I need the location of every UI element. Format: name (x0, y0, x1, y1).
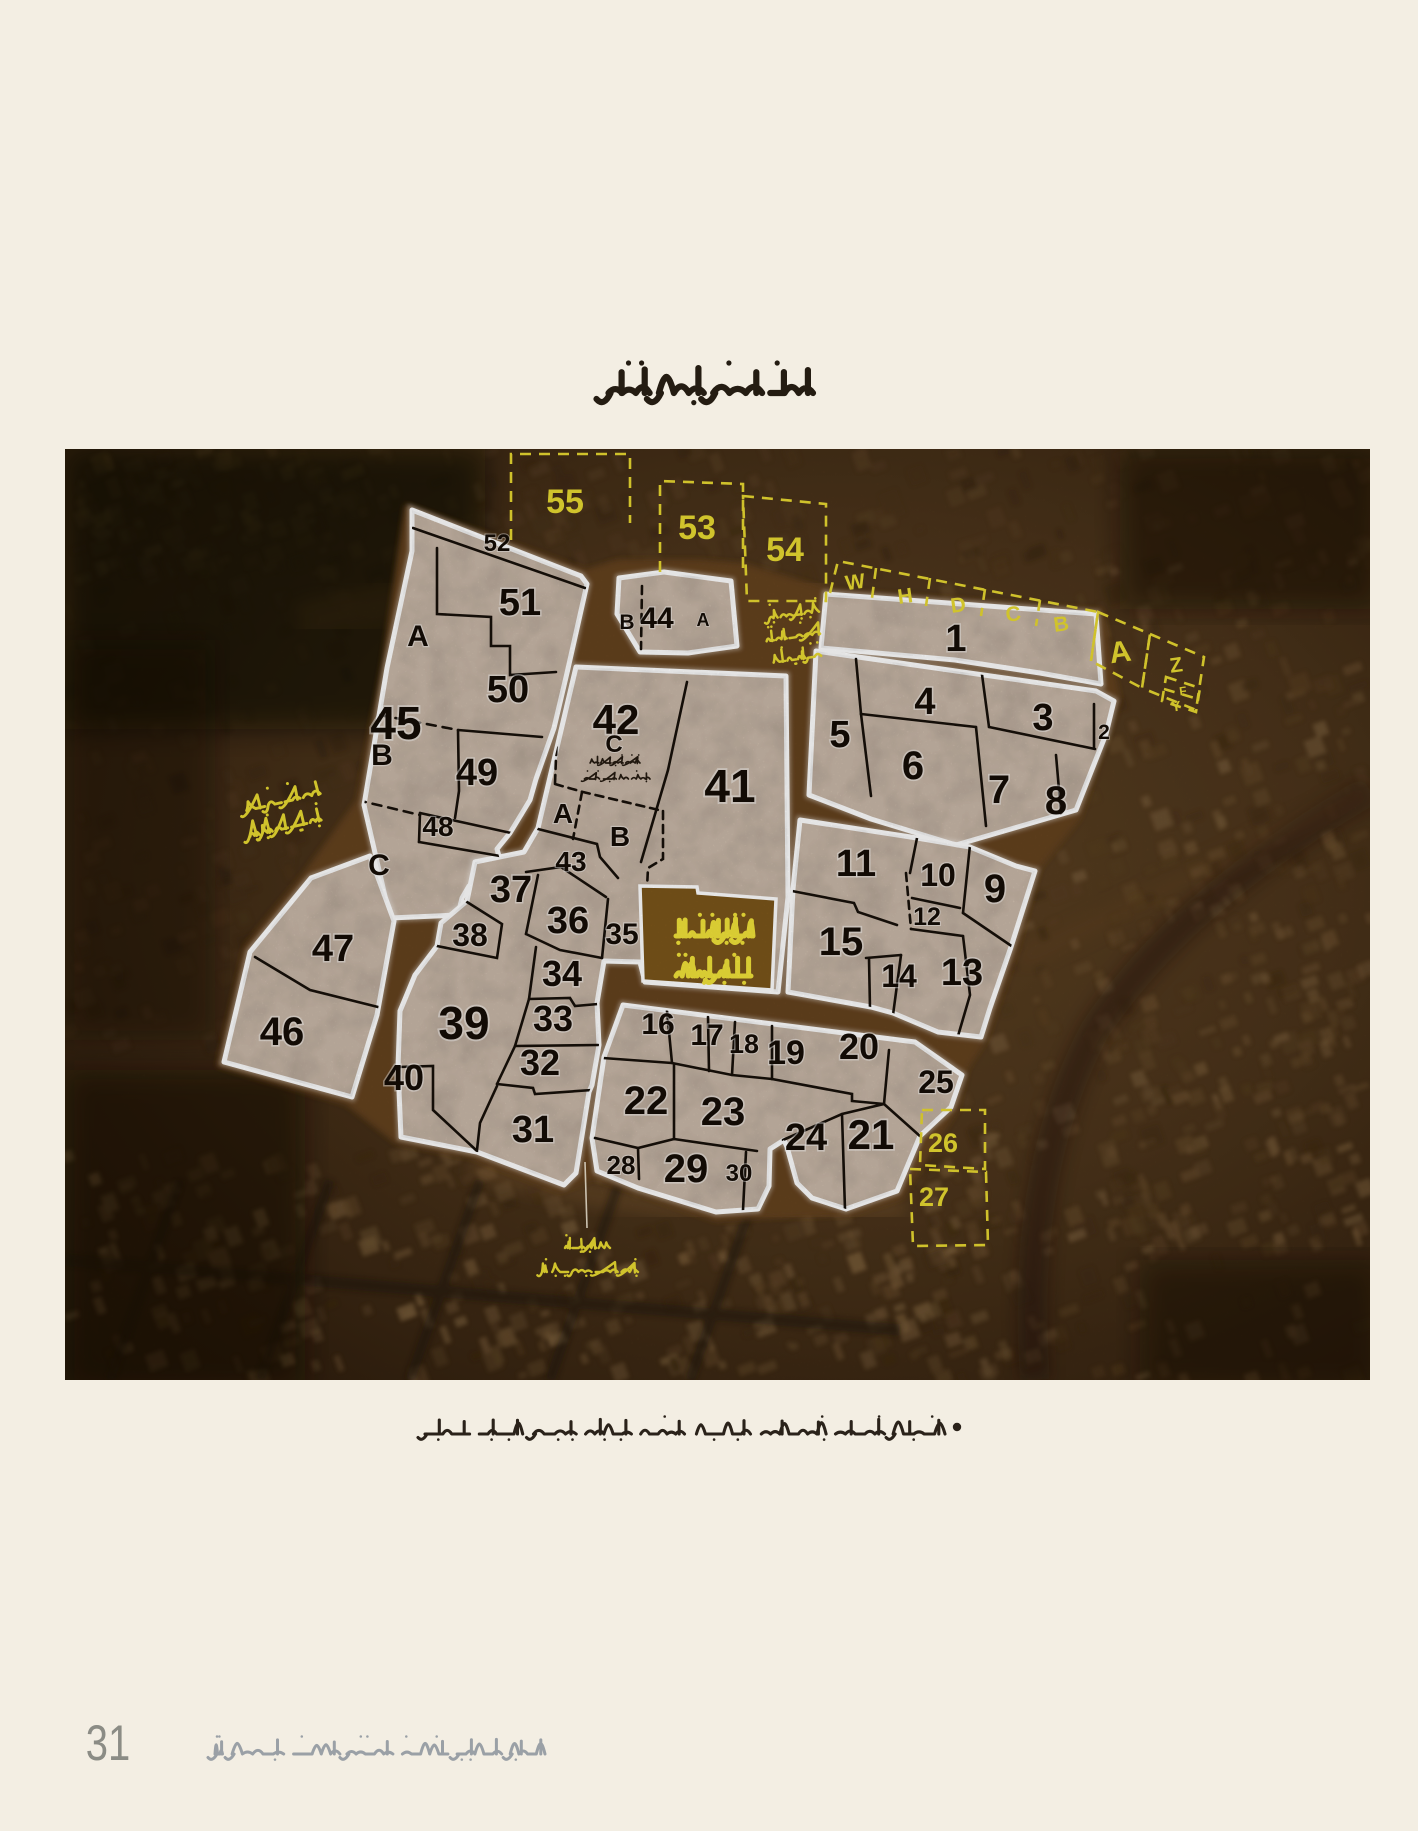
svg-text:31: 31 (86, 1715, 130, 1771)
